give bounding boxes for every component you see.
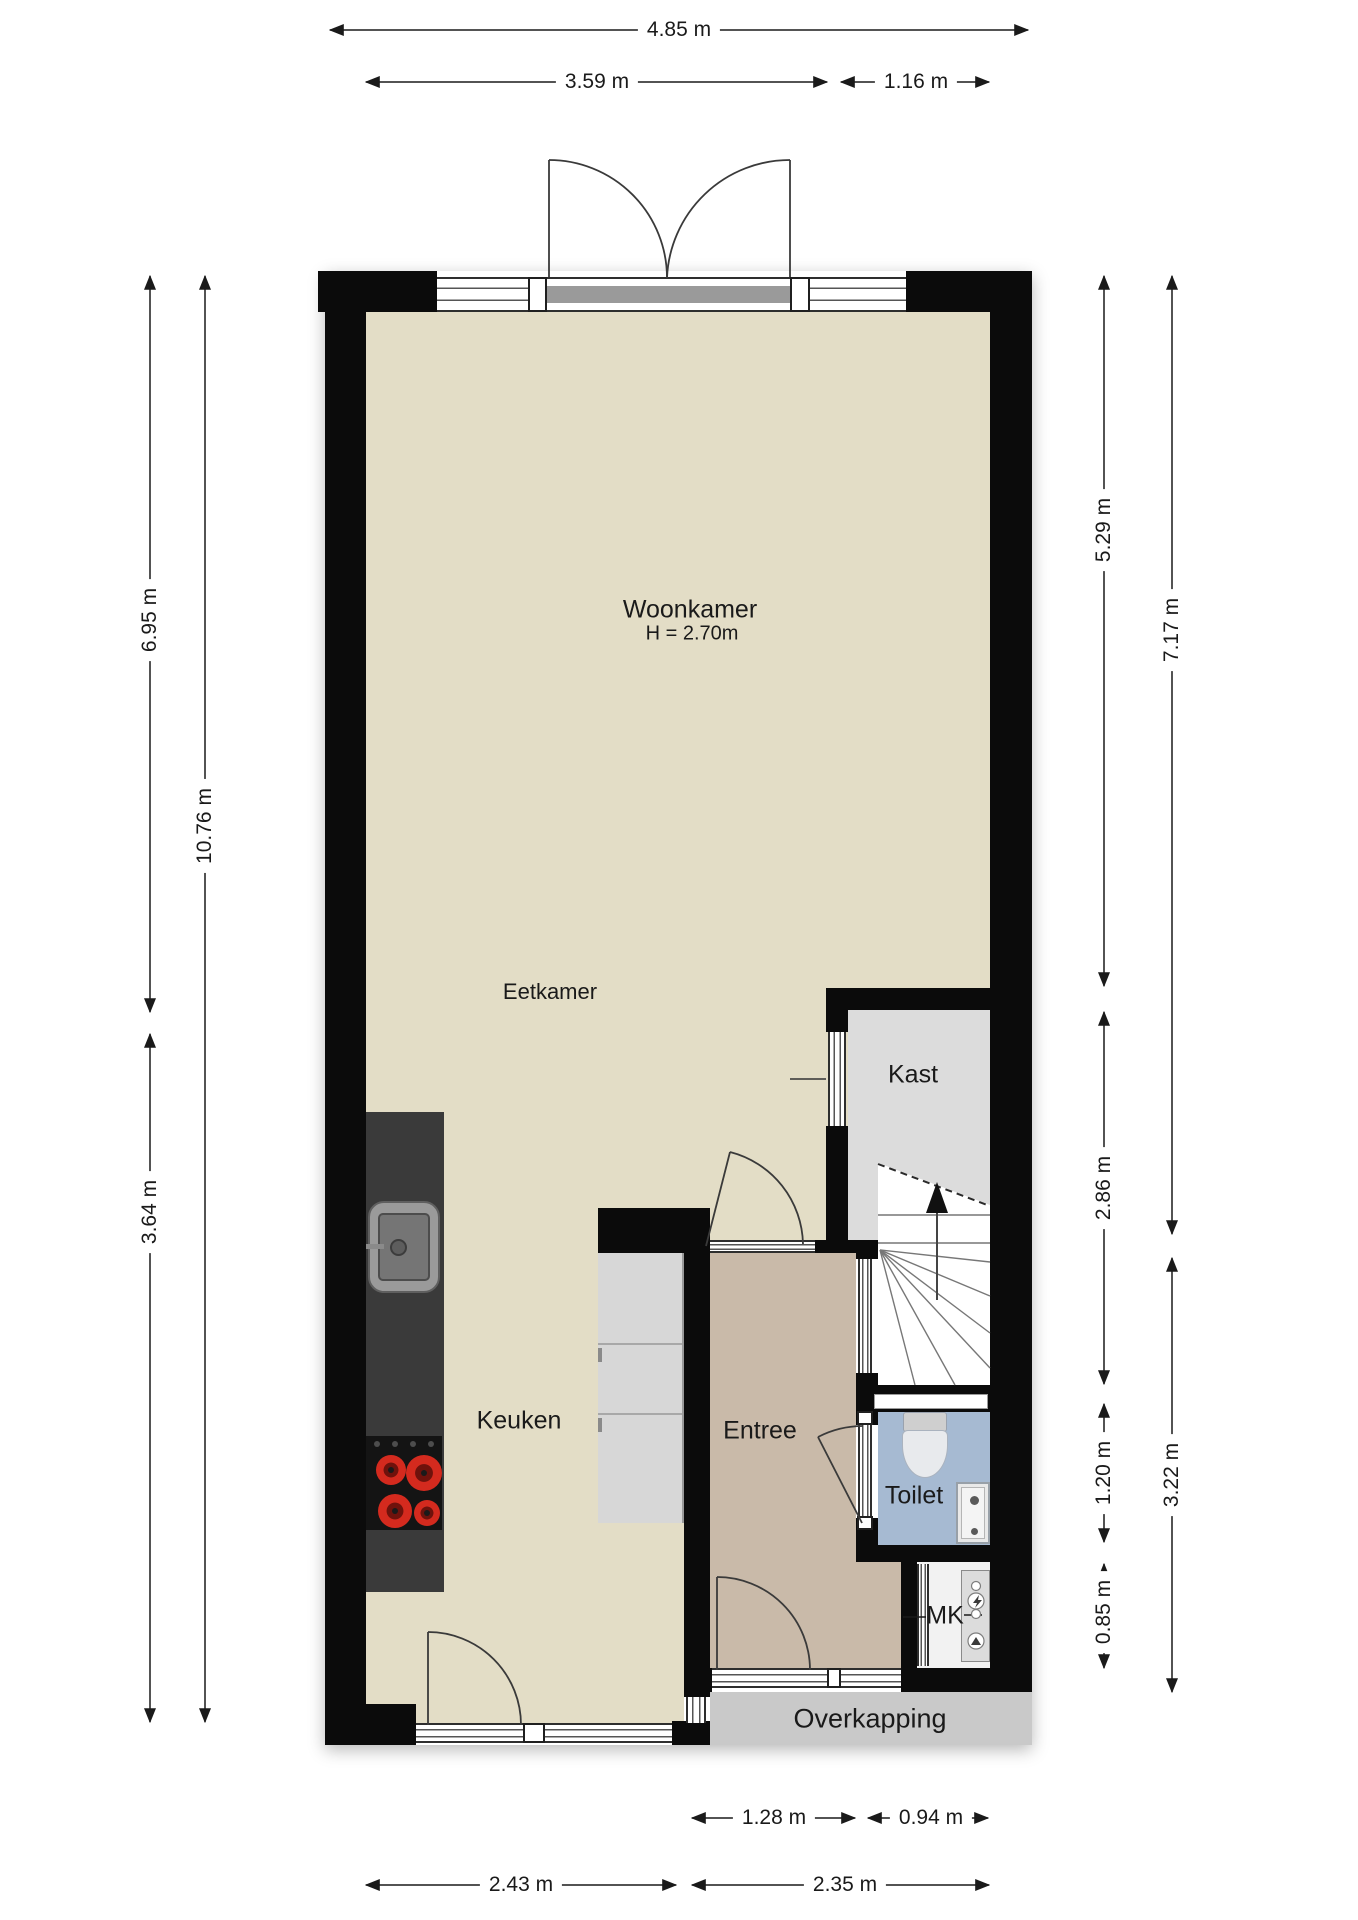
dim-right-toilet: 1.20 m [1092, 1432, 1116, 1514]
dim-bottom-entree: 2.35 m [804, 1873, 886, 1897]
front-door-icon [717, 1577, 810, 1670]
linework-layer [0, 0, 1358, 1920]
room-height-note: H = 2.70m [646, 623, 739, 646]
room-label-mk: MK [926, 1602, 964, 1631]
room-label-entree: Entree [723, 1417, 797, 1446]
dim-top-right: 1.16 m [875, 70, 957, 94]
dim-bottom-keuken: 2.43 m [480, 1873, 562, 1897]
garden-doors-icon [549, 160, 790, 278]
dim-top-total: 4.85 m [638, 18, 720, 42]
eetkamer-door-icon [706, 1152, 803, 1246]
dim-right-lower-total: 3.22 m [1160, 1434, 1184, 1516]
room-label-kast: Kast [888, 1061, 938, 1090]
toilet-door-icon [818, 1426, 863, 1523]
room-label-toilet: Toilet [885, 1482, 943, 1511]
room-label-keuken: Keuken [477, 1407, 562, 1436]
dim-left-lower: 3.64 m [138, 1171, 162, 1253]
dim-bottom-mk: 0.94 m [890, 1806, 972, 1830]
floorplan-page: { "plan": { "type": "floorplan-ground-fl… [0, 0, 1358, 1920]
dim-right-upper: 5.29 m [1092, 489, 1116, 571]
dim-left-upper: 6.95 m [138, 579, 162, 661]
keuken-door-icon [428, 1632, 521, 1725]
dim-left-total: 10.76 m [193, 779, 217, 873]
dim-right-mid: 2.86 m [1092, 1147, 1116, 1229]
dim-right-mk: 0.85 m [1092, 1571, 1116, 1653]
room-label-eetkamer: Eetkamer [503, 979, 597, 1005]
dim-top-left: 3.59 m [556, 70, 638, 94]
room-label-overkapping: Overkapping [793, 1704, 946, 1735]
stairs-direction-arrow [926, 1182, 948, 1300]
stairs-icon [878, 1215, 990, 1385]
dim-right-total-upper: 7.17 m [1160, 589, 1184, 671]
room-label-woonkamer: Woonkamer [623, 596, 757, 625]
dim-bottom-door: 1.28 m [733, 1806, 815, 1830]
dimension-lines [150, 30, 1172, 1885]
